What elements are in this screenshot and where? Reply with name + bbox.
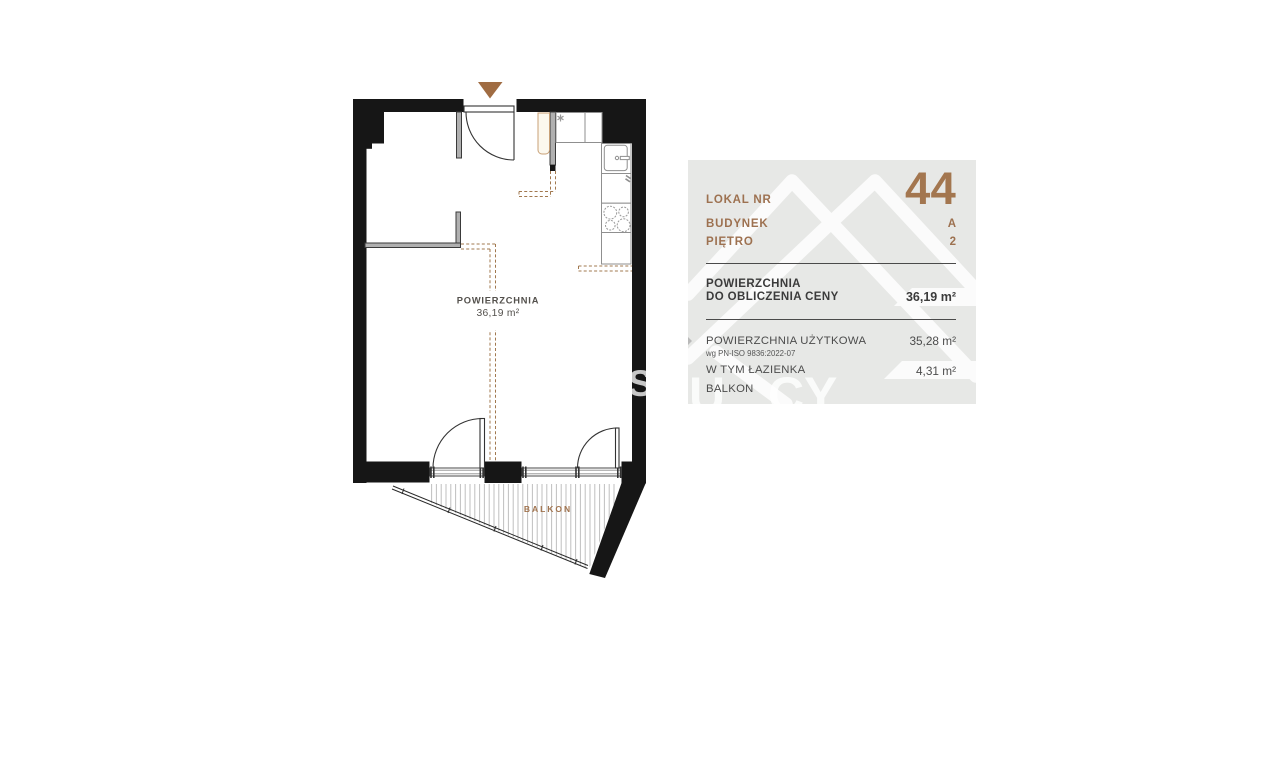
svg-text:POWIERZCHNIA: POWIERZCHNIA — [457, 296, 539, 306]
svg-text:BALKON: BALKON — [524, 504, 572, 514]
svg-text:S: S — [628, 363, 653, 404]
svg-text:36,19 m²: 36,19 m² — [476, 308, 519, 319]
